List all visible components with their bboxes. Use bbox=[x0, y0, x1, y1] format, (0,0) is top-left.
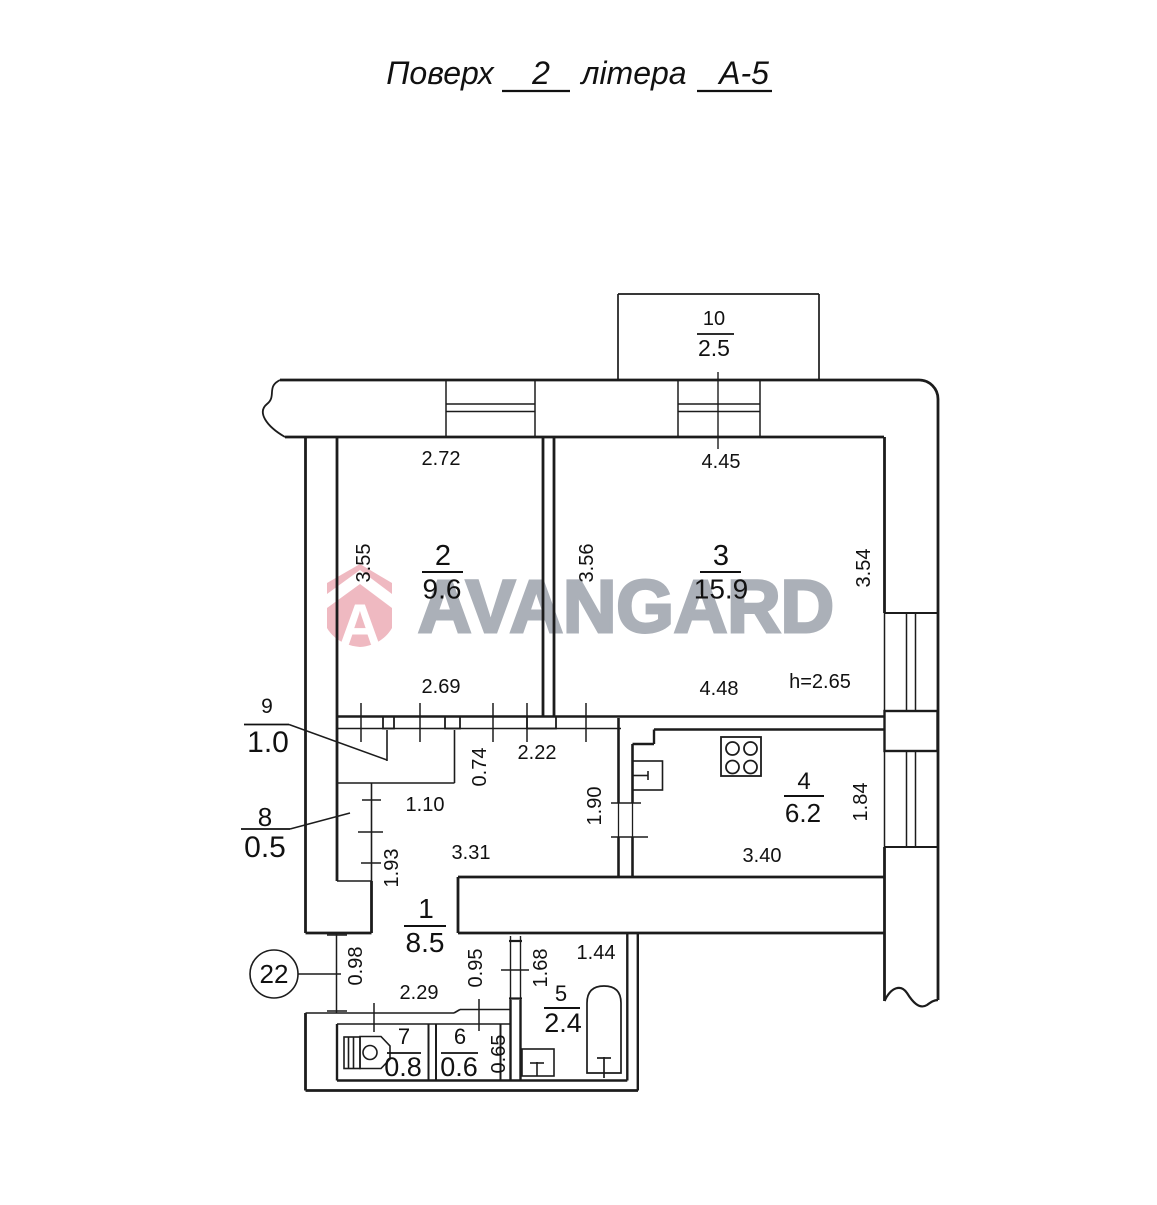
svg-text:AVANGARD: AVANGARD bbox=[418, 565, 834, 648]
svg-text:9.6: 9.6 bbox=[423, 574, 462, 605]
svg-text:2: 2 bbox=[531, 55, 550, 91]
svg-text:1.90: 1.90 bbox=[584, 787, 606, 826]
svg-text:2.22: 2.22 bbox=[518, 742, 557, 764]
svg-text:2.5: 2.5 bbox=[698, 335, 730, 361]
svg-text:3.54: 3.54 bbox=[853, 549, 875, 588]
svg-text:3.56: 3.56 bbox=[576, 544, 598, 583]
svg-text:0.5: 0.5 bbox=[244, 831, 286, 864]
svg-text:1: 1 bbox=[418, 893, 434, 924]
svg-text:22: 22 bbox=[260, 959, 289, 989]
svg-text:А-5: А-5 bbox=[717, 55, 769, 91]
svg-text:1.44: 1.44 bbox=[577, 942, 616, 964]
svg-text:3: 3 bbox=[713, 540, 729, 572]
svg-text:Поверх: Поверх bbox=[386, 55, 495, 91]
svg-text:7: 7 bbox=[398, 1024, 410, 1049]
svg-text:1.0: 1.0 bbox=[247, 726, 289, 759]
svg-text:2.69: 2.69 bbox=[422, 676, 461, 698]
svg-text:15.9: 15.9 bbox=[694, 574, 749, 605]
svg-text:3.31: 3.31 bbox=[452, 842, 491, 864]
svg-text:2.72: 2.72 bbox=[422, 448, 461, 470]
svg-text:0.65: 0.65 bbox=[488, 1035, 510, 1074]
svg-text:5: 5 bbox=[555, 981, 567, 1006]
svg-text:4: 4 bbox=[797, 768, 810, 795]
svg-text:2: 2 bbox=[435, 540, 451, 572]
svg-text:1.93: 1.93 bbox=[381, 849, 403, 888]
svg-text:літера: літера bbox=[579, 55, 686, 91]
svg-text:3.55: 3.55 bbox=[353, 544, 375, 583]
svg-text:1.84: 1.84 bbox=[850, 783, 872, 822]
svg-text:0.98: 0.98 bbox=[345, 947, 367, 986]
svg-text:1.68: 1.68 bbox=[530, 949, 552, 988]
svg-text:6: 6 bbox=[454, 1024, 466, 1049]
svg-text:h=2.65: h=2.65 bbox=[789, 671, 851, 693]
svg-text:3.40: 3.40 bbox=[743, 845, 782, 867]
svg-text:8: 8 bbox=[258, 802, 272, 832]
svg-text:2.4: 2.4 bbox=[544, 1008, 582, 1038]
svg-text:4.45: 4.45 bbox=[702, 451, 741, 473]
svg-text:2.29: 2.29 bbox=[400, 982, 439, 1004]
svg-text:10: 10 bbox=[703, 308, 725, 330]
svg-text:8.5: 8.5 bbox=[406, 927, 445, 958]
svg-text:0.6: 0.6 bbox=[440, 1052, 478, 1082]
svg-text:0.95: 0.95 bbox=[465, 949, 487, 988]
svg-text:9: 9 bbox=[261, 695, 273, 718]
svg-text:A: A bbox=[339, 593, 381, 658]
svg-text:0.74: 0.74 bbox=[469, 748, 491, 787]
svg-text:6.2: 6.2 bbox=[785, 798, 821, 828]
svg-text:0.8: 0.8 bbox=[384, 1052, 422, 1082]
svg-text:1.10: 1.10 bbox=[406, 794, 445, 816]
svg-text:4.48: 4.48 bbox=[700, 678, 739, 700]
